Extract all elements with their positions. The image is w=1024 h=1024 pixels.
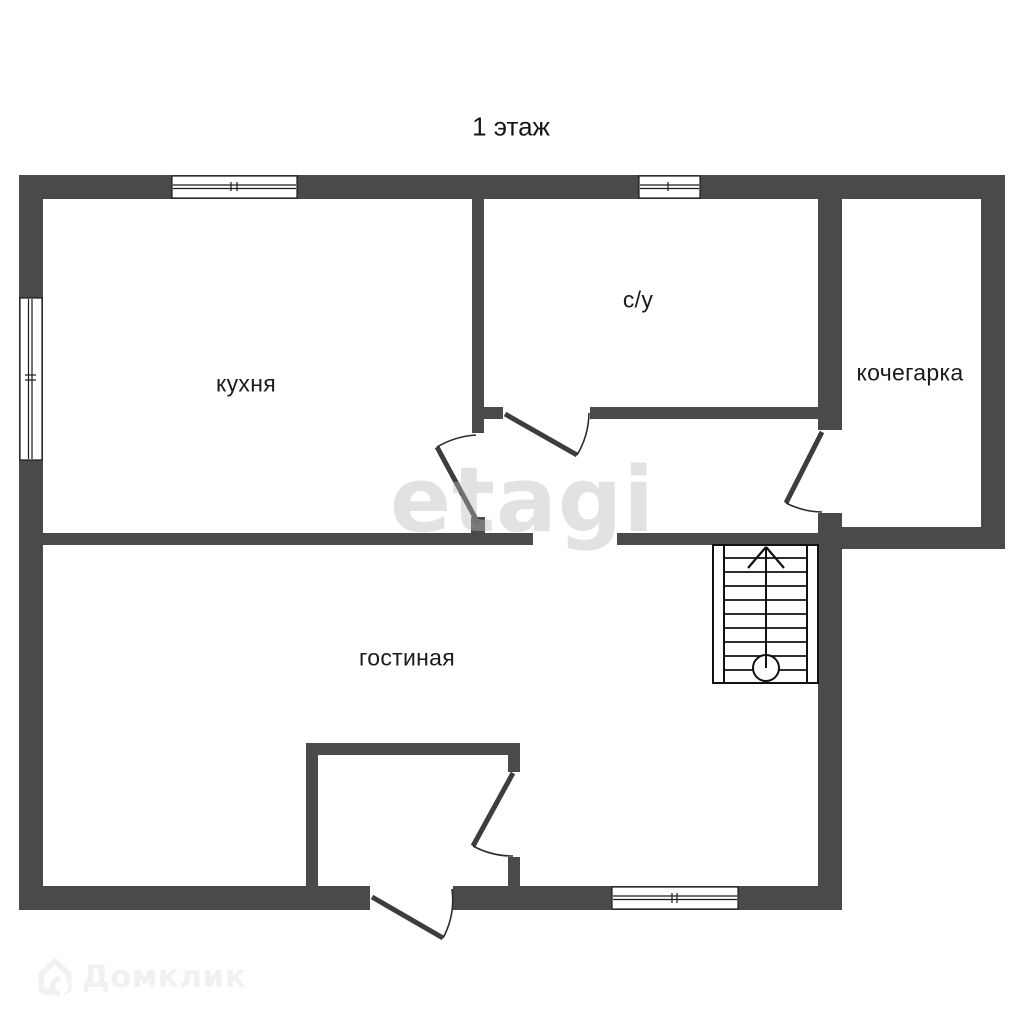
door-vestibule [473,773,513,856]
floor-plan: 1 этаж кухня с/у кочегарка гостиная etag… [0,0,1024,1024]
entrance-opening [370,886,453,910]
room-label-bathroom: с/у [623,287,653,314]
window-frame [172,176,297,198]
floor-title: 1 этаж [472,112,550,143]
window-frame [639,176,700,198]
door-swing-arc [437,435,476,447]
house-icon [34,956,76,998]
window-left-kitchen [20,298,42,460]
wall-segment [472,199,484,433]
wall-segment [837,527,981,549]
room-label-boiler-room: кочегарка [857,360,964,387]
door-swing-arc [473,846,513,856]
wall-segment [318,743,508,755]
agency-logo: Домклик [34,956,246,998]
room-label-living-room: гостиная [359,645,455,672]
stairs-up-symbol [713,545,818,683]
wall-segment [508,743,520,772]
door-boiler-room [786,432,822,512]
room-label-kitchen: кухня [216,371,276,398]
window-frame [612,887,738,909]
window-frame [20,298,42,460]
wall-segment [981,199,1005,549]
window-top-bathroom [639,176,700,198]
wall-segment [472,407,503,419]
door-leaf [473,773,513,846]
wall-segment [818,513,842,886]
wall-segment [306,743,318,886]
logo-text: Домклик [82,959,246,995]
watermark: etagi [390,448,655,553]
window-top-kitchen [172,176,297,198]
wall-segment [818,199,842,430]
window-bottom-living [612,887,738,909]
door-swing-arc [786,503,822,512]
door-leaf [786,432,822,503]
wall-segment [508,857,520,886]
wall-segment [590,407,818,419]
wall-segment [19,175,1005,199]
